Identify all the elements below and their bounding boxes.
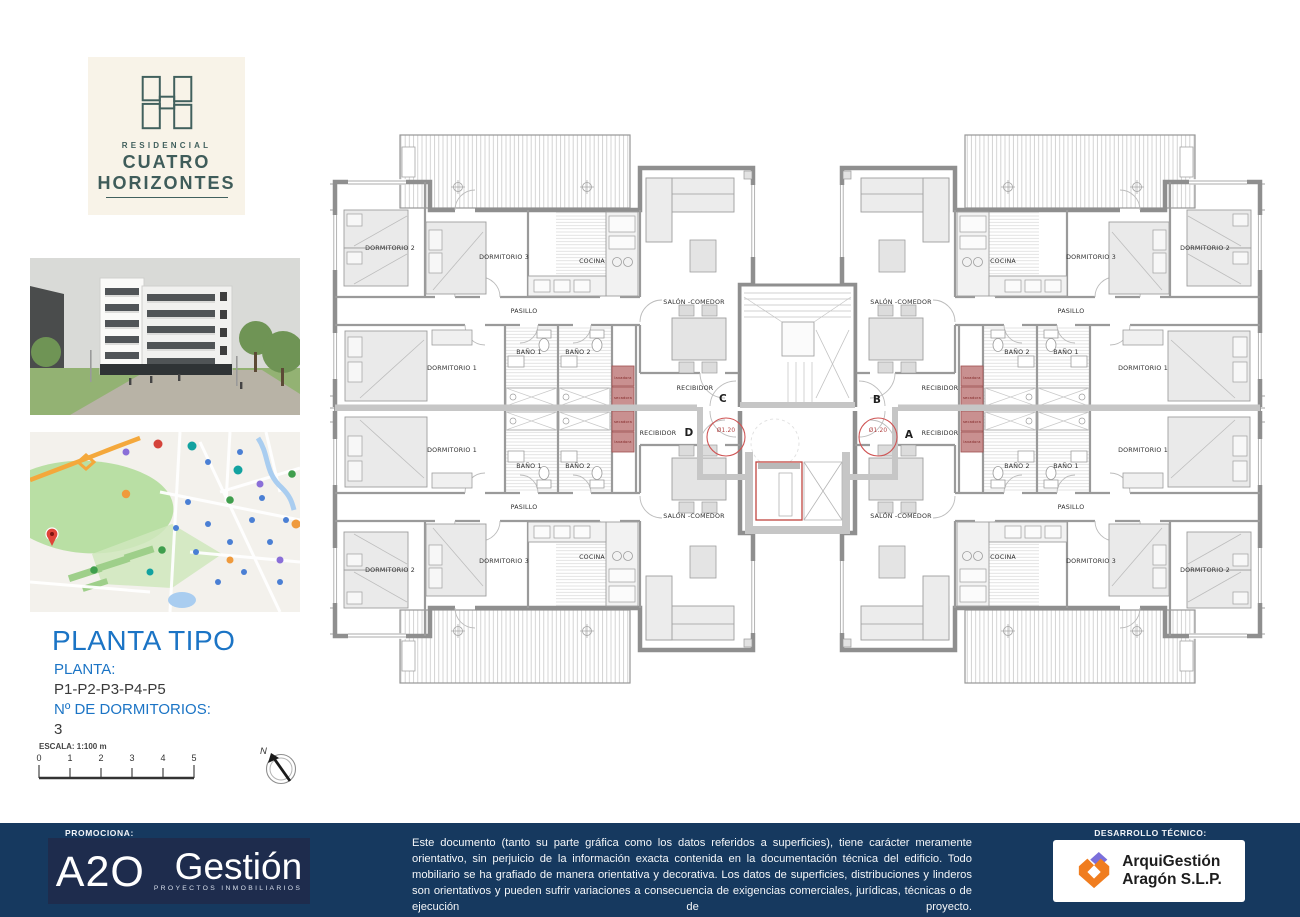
apartment-letter: A (905, 429, 914, 441)
h-logo-icon (140, 75, 194, 131)
room-label: PASILLO (511, 308, 538, 315)
bedrooms-label: Nº DE DORMITORIOS: (54, 701, 211, 718)
room-label: SALÓN -COMEDOR (663, 511, 725, 520)
room-label: RECIBIDOR (677, 385, 714, 392)
logo-residencial-text: RESIDENCIAL (122, 141, 211, 150)
room-label: SALÓN -COMEDOR (870, 297, 932, 306)
apartment-letter: C (719, 393, 727, 405)
footer: PROMOCIONA: A2O Gestión PROYECTOS INMOBI… (0, 823, 1300, 917)
promoter-name: A2O (56, 853, 145, 893)
room-label: PASILLO (1058, 504, 1085, 511)
apartment-letter: B (873, 394, 881, 406)
room-label: BAÑO 2 (565, 347, 591, 356)
logo-cuatro-text: CUATRO (123, 152, 211, 173)
room-label: DORMITORIO 2 (365, 567, 415, 574)
north-compass-icon: N (256, 742, 302, 788)
promoter-name-2: Gestión (175, 850, 303, 883)
room-label: DORMITORIO 2 (365, 245, 415, 252)
appliance-label: secadora (614, 396, 632, 400)
planta-label: PLANTA: (54, 661, 115, 678)
room-label: RECIBIDOR (922, 430, 959, 437)
room-label: DORMITORIO 1 (427, 447, 477, 454)
room-label: BAÑO 2 (1004, 347, 1030, 356)
apartment-letter: D (685, 427, 694, 439)
desarrollo-tecnico-label: DESARROLLO TÉCNICO: (1058, 828, 1243, 838)
room-label: BAÑO 2 (565, 461, 591, 470)
room-label: PASILLO (511, 504, 538, 511)
promociona-label: PROMOCIONA: (65, 828, 134, 838)
arquigestion-mark-icon (1076, 850, 1114, 892)
diameter-label: Ø1.20 (717, 427, 736, 434)
room-label: DORMITORIO 3 (1066, 558, 1116, 565)
room-label: SALÓN -COMEDOR (663, 297, 725, 306)
central-core (335, 285, 1260, 534)
room-label: COCINA (990, 258, 1016, 265)
page: RESIDENCIAL CUATRO HORIZONTES (0, 0, 1300, 917)
room-label: BAÑO 1 (516, 347, 542, 356)
room-label: COCINA (579, 554, 605, 561)
appliance-label: lavadora (614, 376, 631, 380)
room-label: DORMITORIO 2 (1180, 245, 1230, 252)
room-label: RECIBIDOR (922, 385, 959, 392)
room-label: DORMITORIO 1 (427, 365, 477, 372)
room-label: DORMITORIO 2 (1180, 567, 1230, 574)
apartment-quadrant (330, 406, 756, 683)
room-label: BAÑO 1 (516, 461, 542, 470)
building-render-image (30, 258, 300, 415)
developer-logo: ArquiGestión Aragón S.L.P. (1053, 840, 1245, 902)
apartment-quadrant (330, 135, 756, 412)
room-label: COCINA (990, 554, 1016, 561)
appliance-label: lavadora (614, 440, 631, 444)
room-label: DORMITORIO 1 (1118, 447, 1168, 454)
room-label: BAÑO 1 (1053, 461, 1079, 470)
floor-plan: DORMITORIO 2DORMITORIO 2DORMITORIO 2DORM… (330, 130, 1265, 690)
appliance-label: secadora (963, 396, 981, 400)
room-label: DORMITORIO 3 (479, 558, 529, 565)
appliance-label: secadora (614, 420, 632, 424)
diameter-label: Ø1.20 (869, 427, 888, 434)
room-label: DORMITORIO 3 (1066, 254, 1116, 261)
location-map-image (30, 432, 300, 612)
room-label: BAÑO 2 (1004, 461, 1030, 470)
north-label: N (260, 746, 267, 757)
appliance-label: secadora (963, 420, 981, 424)
residencial-logo: RESIDENCIAL CUATRO HORIZONTES (88, 57, 245, 215)
legal-disclaimer: Este documento (tanto su parte gráfica c… (412, 835, 972, 915)
scale-ruler: 0 1 2 3 4 5 (36, 753, 202, 781)
page-title: PLANTA TIPO (52, 625, 235, 657)
bedrooms-value: 3 (54, 721, 62, 738)
logo-underline (106, 197, 228, 198)
appliance-label: lavadora (963, 440, 980, 444)
apartment-quadrant (839, 406, 1265, 683)
room-label: BAÑO 1 (1053, 347, 1079, 356)
planta-value: P1-P2-P3-P4-P5 (54, 681, 166, 698)
room-label: SALÓN -COMEDOR (870, 511, 932, 520)
logo-horizontes-text: HORIZONTES (97, 173, 235, 194)
room-label: DORMITORIO 3 (479, 254, 529, 261)
room-label: DORMITORIO 1 (1118, 365, 1168, 372)
developer-name: ArquiGestión (1122, 853, 1222, 871)
apartment-quadrant (839, 135, 1265, 412)
scale-label: ESCALA: 1:100 m (39, 742, 107, 751)
room-label: COCINA (579, 258, 605, 265)
room-label: PASILLO (1058, 308, 1085, 315)
developer-name-2: Aragón S.L.P. (1122, 871, 1222, 889)
promoter-logo: A2O Gestión PROYECTOS INMOBILIARIOS (48, 838, 310, 904)
room-label: RECIBIDOR (640, 430, 677, 437)
promoter-subtitle: PROYECTOS INMOBILIARIOS (154, 885, 302, 892)
appliance-label: lavadora (963, 376, 980, 380)
